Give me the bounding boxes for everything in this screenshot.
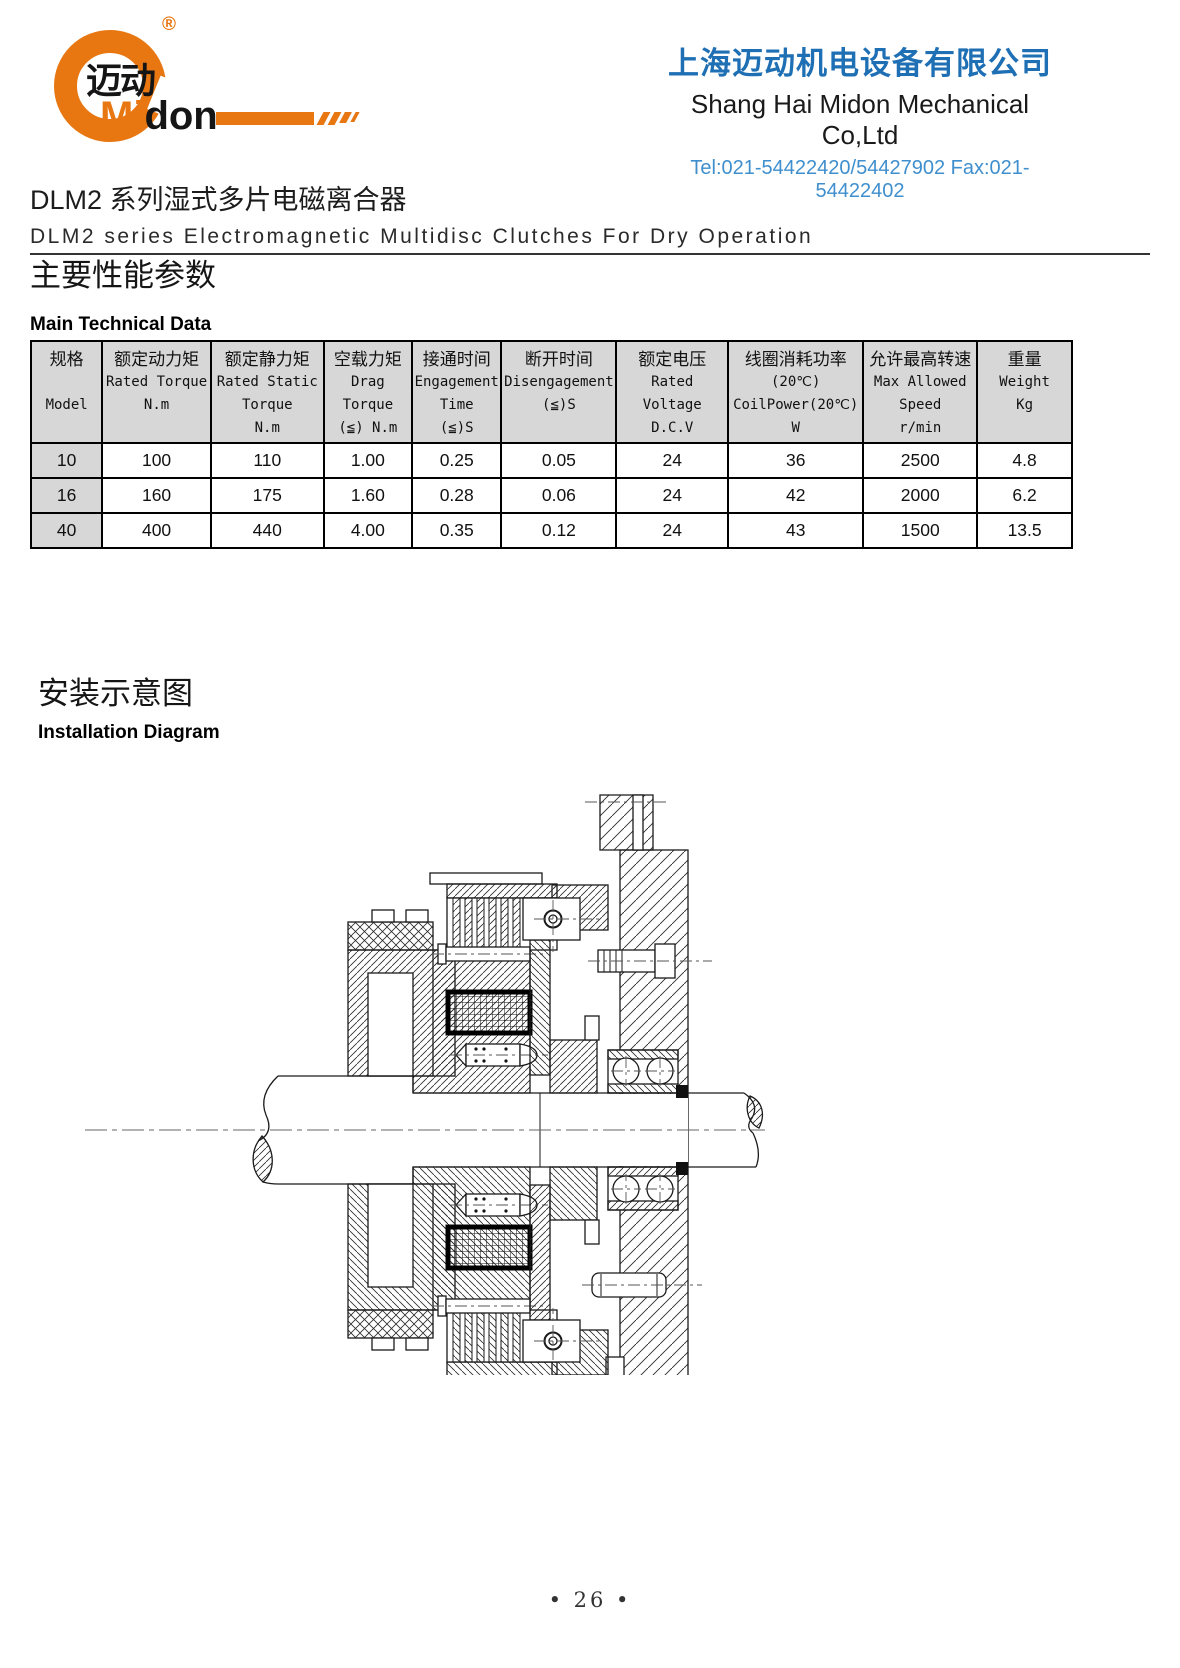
cell: 0.25 [412, 443, 501, 478]
tech-table: 规格 Model 额定动力矩Rated TorqueN.m 额定静力矩Rated… [30, 340, 1073, 549]
cell: 24 [616, 478, 728, 513]
cell: 175 [211, 478, 324, 513]
col-header-5: 断开时间Disengagement(≦)S [501, 341, 616, 443]
cell: 4.8 [977, 443, 1072, 478]
cell: 110 [211, 443, 324, 478]
product-title-cn: DLM2 系列湿式多片电磁离合器 [30, 178, 1150, 217]
col-header-9: 重量WeightKg [977, 341, 1072, 443]
section-params-en: Main Technical Data [30, 314, 211, 336]
cell: 24 [616, 513, 728, 548]
logo-en-don: don [144, 94, 217, 138]
cell: 4.00 [324, 513, 412, 548]
col-header-0: 规格 Model [31, 341, 102, 443]
logo-en-mi: Mi [100, 94, 144, 138]
table-row: 101001101.000.250.05243625004.8 [31, 443, 1072, 478]
cell: 40 [31, 513, 102, 548]
cell: 440 [211, 513, 324, 548]
cell: 100 [102, 443, 211, 478]
company-name-cn: 上海迈动机电设备有限公司 [660, 38, 1060, 83]
section-install-en: Installation Diagram [38, 722, 220, 744]
col-header-7: 线圈消耗功率(20℃)CoilPower(20℃)W [728, 341, 863, 443]
cell: 42 [728, 478, 863, 513]
cell: 13.5 [977, 513, 1072, 548]
cell: 1.00 [324, 443, 412, 478]
cell: 36 [728, 443, 863, 478]
seal-ring [676, 1085, 688, 1098]
cell: 1500 [863, 513, 977, 548]
seal-ring [676, 1162, 688, 1175]
product-title-en: DLM2 series Electromagnetic Multidisc Cl… [30, 225, 1150, 249]
section-install-cn: 安装示意图 [38, 668, 193, 713]
col-header-1: 额定动力矩Rated TorqueN.m [102, 341, 211, 443]
table-row: 404004404.000.350.122443150013.5 [31, 513, 1072, 548]
cell: 400 [102, 513, 211, 548]
cell: 0.06 [501, 478, 616, 513]
col-header-4: 接通时间EngagementTime(≦)S [412, 341, 501, 443]
product-title-block: DLM2 系列湿式多片电磁离合器 DLM2 series Electromagn… [30, 178, 1150, 255]
page-number: • 26 • [0, 1588, 1180, 1612]
cell: 1.60 [324, 478, 412, 513]
datasheet-page: ® 迈动 Midon 上海迈动机电设备有限公司 Shang Hai Midon … [0, 0, 1180, 1668]
col-header-3: 空载力矩DragTorque(≦) N.m [324, 341, 412, 443]
section-params-cn: 主要性能参数 [30, 250, 216, 295]
registered-mark: ® [162, 14, 176, 36]
logo-hash-icon [328, 112, 342, 125]
cell: 0.28 [412, 478, 501, 513]
col-header-2: 额定静力矩Rated StaticTorqueN.m [211, 341, 324, 443]
cell: 16 [31, 478, 102, 513]
logo-en-text: Midon [100, 94, 218, 139]
cell: 2500 [863, 443, 977, 478]
col-header-8: 允许最高转速Max AllowedSpeedr/min [863, 341, 977, 443]
cell: 10 [31, 443, 102, 478]
logo-hash-icon [350, 112, 359, 122]
logo-bar-icon [216, 112, 314, 125]
cell: 0.35 [412, 513, 501, 548]
cell: 24 [616, 443, 728, 478]
midon-logo: ® 迈动 Midon [40, 12, 370, 147]
cell: 43 [728, 513, 863, 548]
col-header-6: 额定电压RatedVoltageD.C.V [616, 341, 728, 443]
installation-diagram-drawing: .s{stroke:#1a1a1a;stroke-width:1.3;} .s2… [70, 785, 780, 1375]
company-name-en: Shang Hai Midon Mechanical Co,Ltd [660, 89, 1060, 151]
cell: 6.2 [977, 478, 1072, 513]
cell: 0.05 [501, 443, 616, 478]
cell: 0.12 [501, 513, 616, 548]
table-row: 161601751.600.280.06244220006.2 [31, 478, 1072, 513]
cell: 160 [102, 478, 211, 513]
cell: 2000 [863, 478, 977, 513]
